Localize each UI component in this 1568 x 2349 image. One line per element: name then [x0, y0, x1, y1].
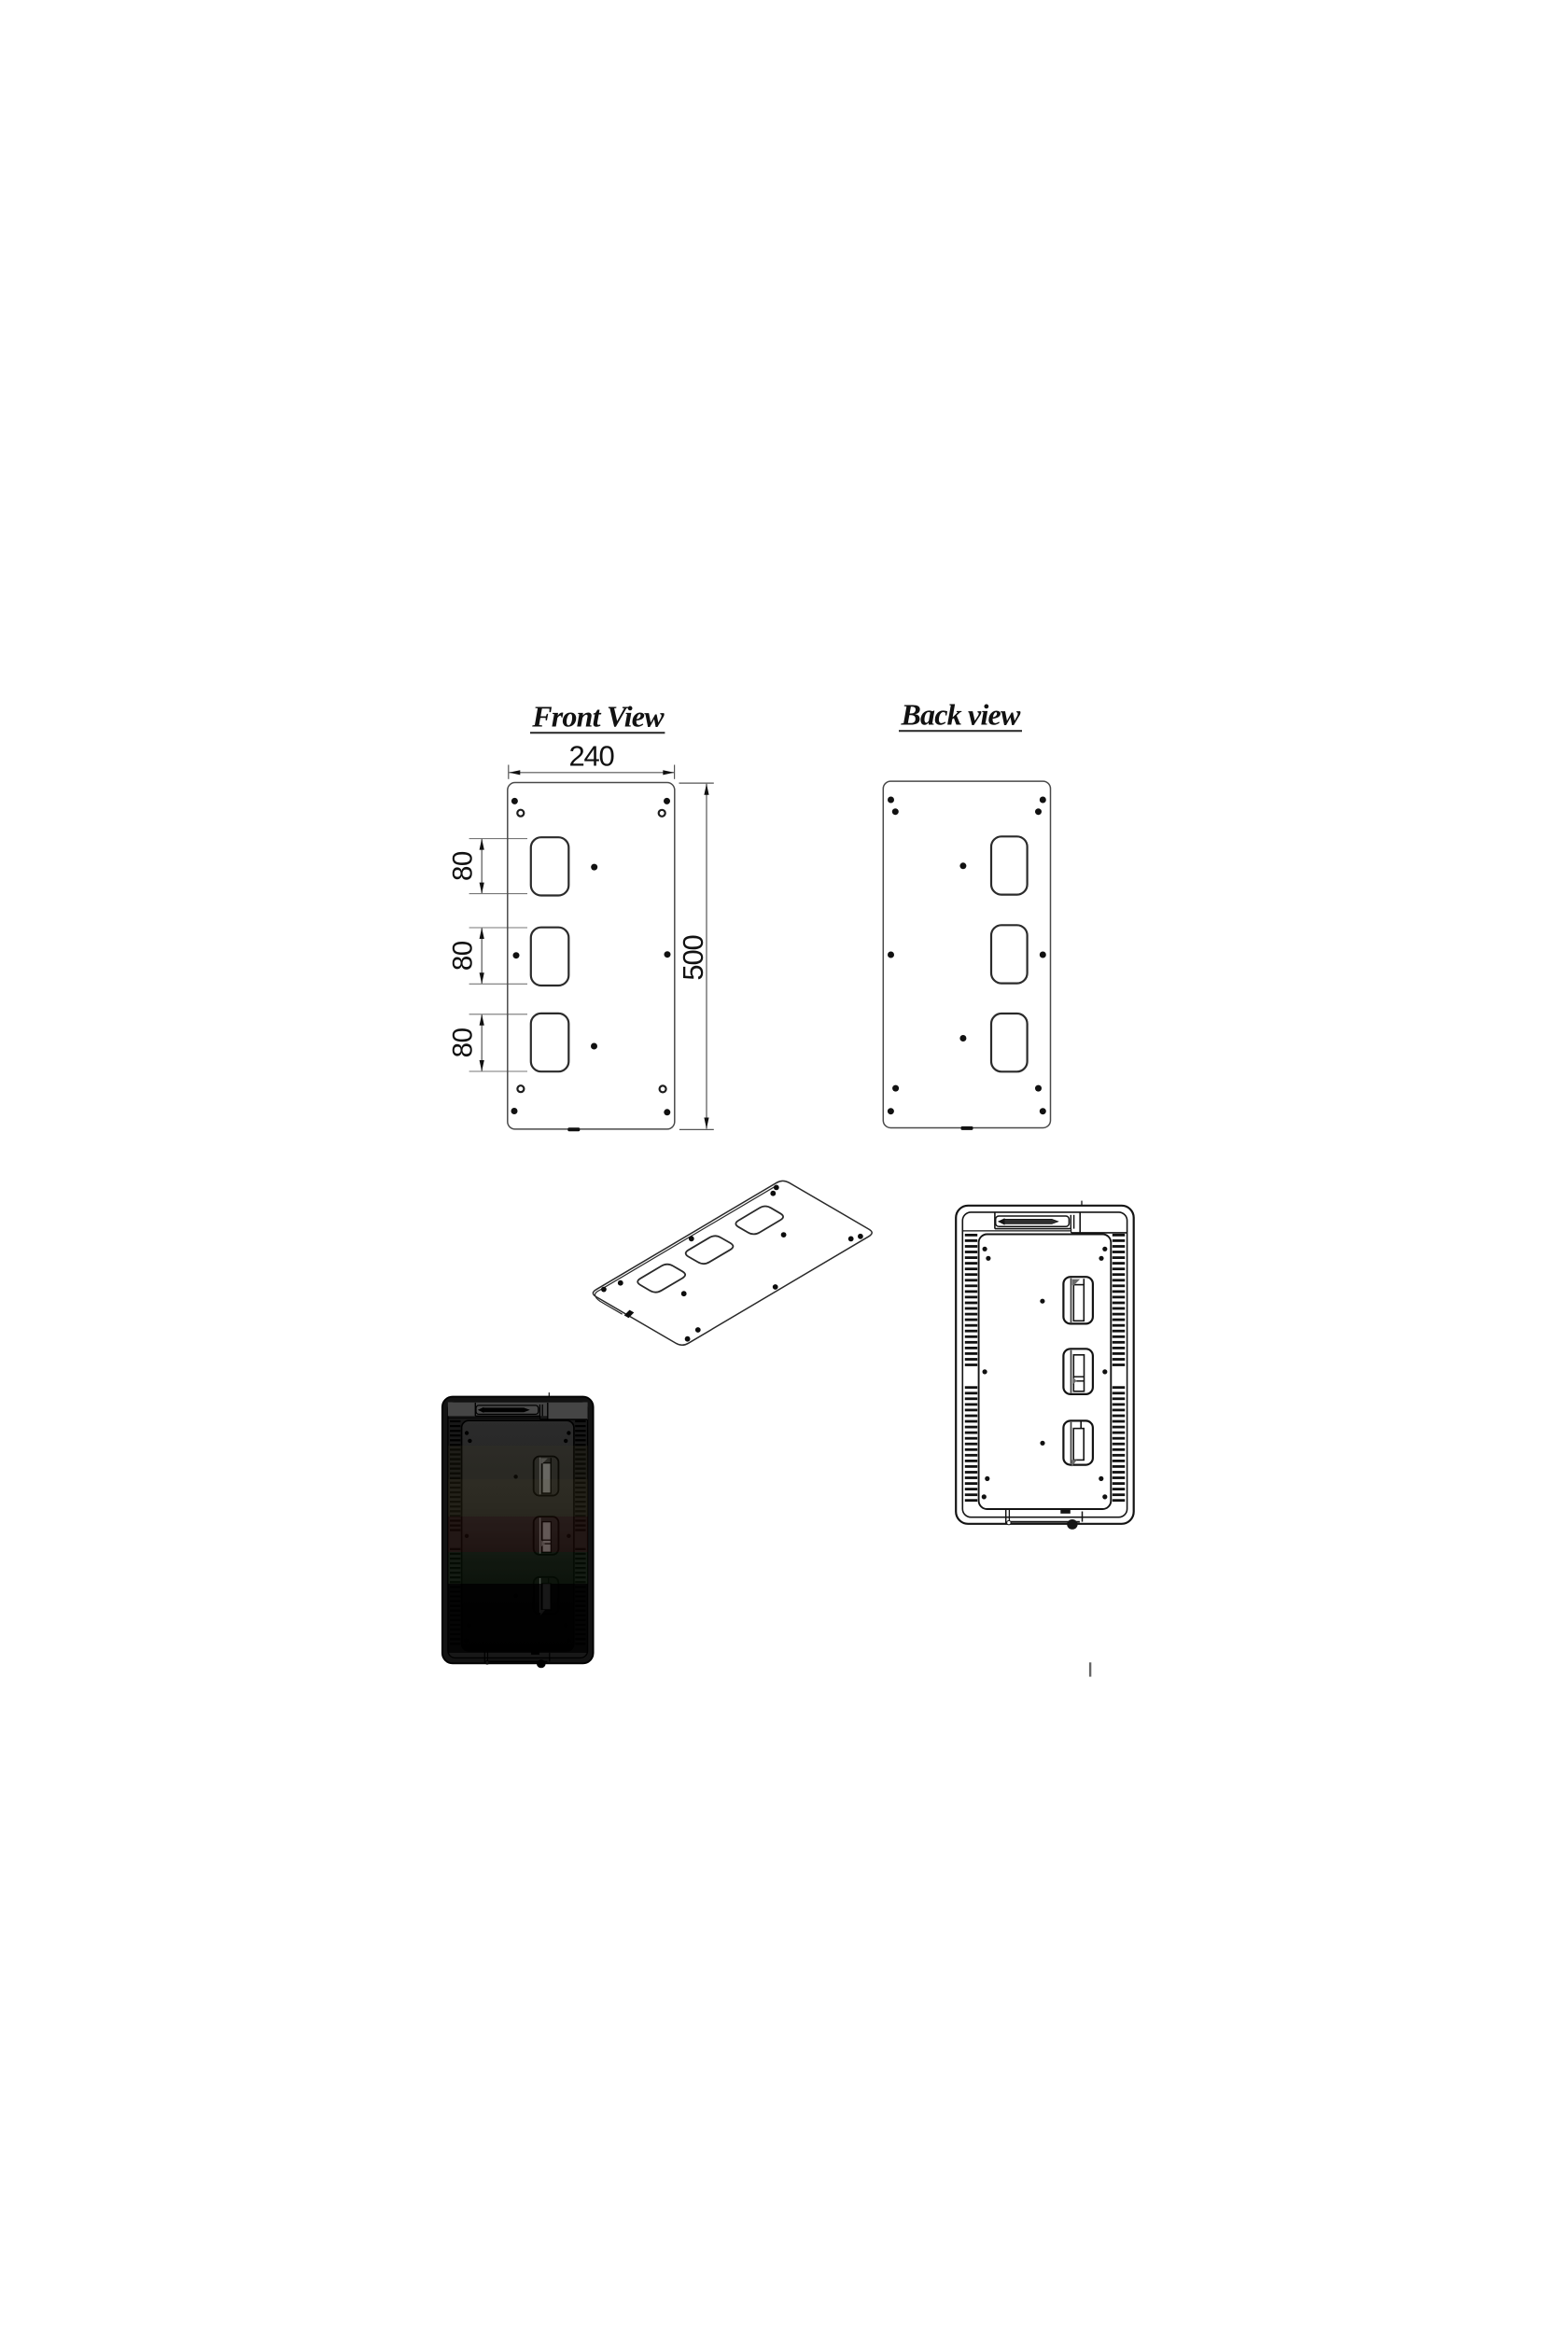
- svg-text:80: 80: [447, 1028, 478, 1057]
- svg-text:Front View: Front View: [531, 700, 665, 734]
- svg-text:80: 80: [447, 941, 478, 971]
- svg-text:80: 80: [447, 851, 478, 881]
- svg-text:Back view: Back view: [901, 698, 1021, 732]
- svg-text:240: 240: [568, 740, 614, 773]
- svg-text:500: 500: [677, 934, 709, 980]
